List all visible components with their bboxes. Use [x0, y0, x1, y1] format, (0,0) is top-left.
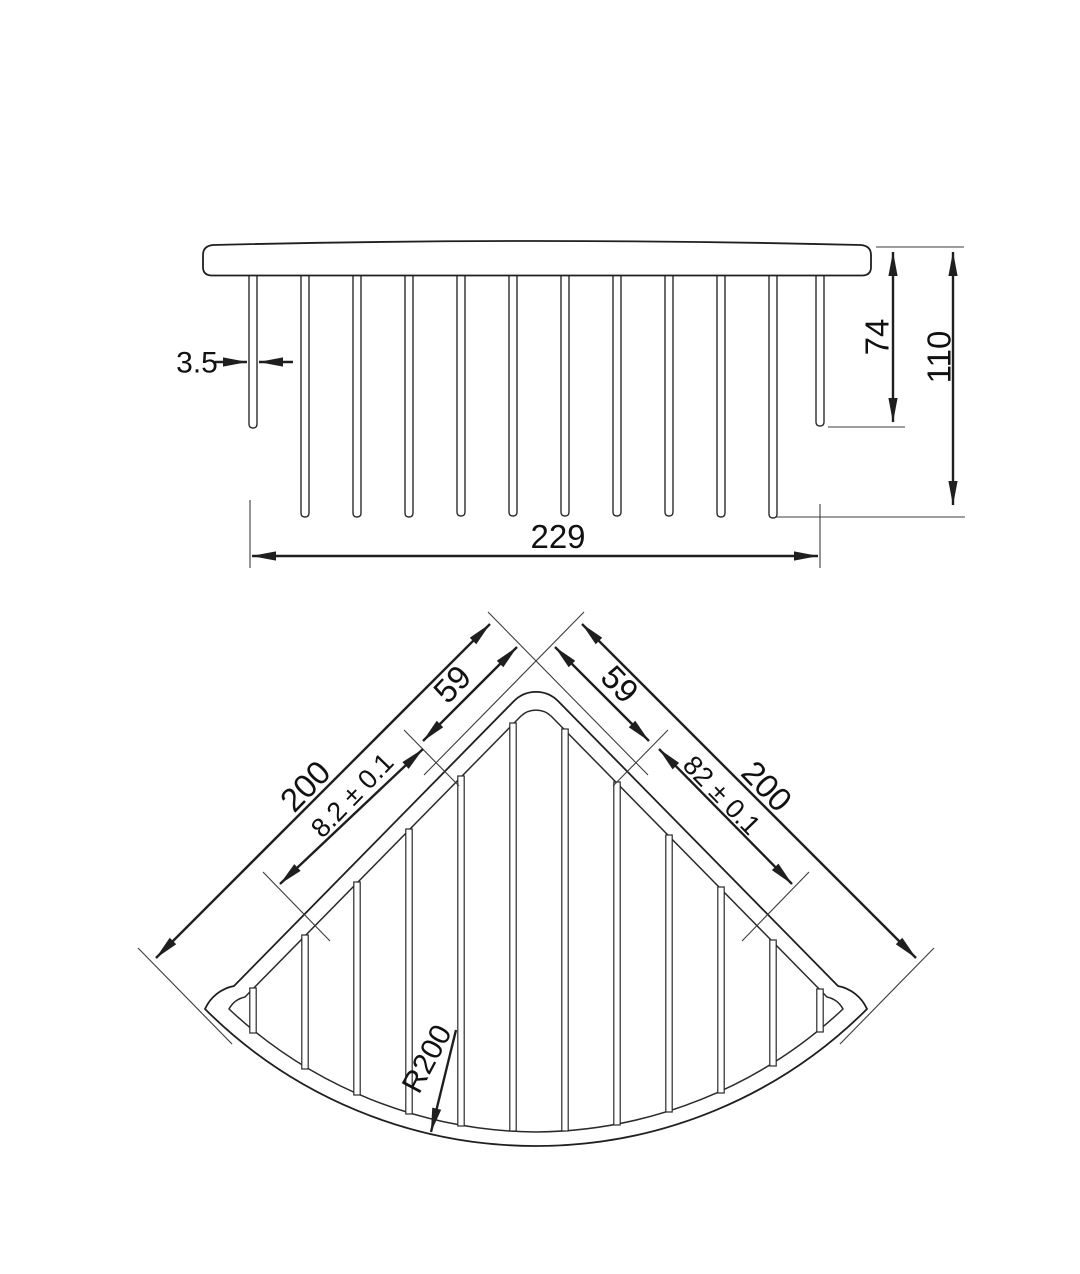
wire-plan: [614, 782, 620, 1125]
rail-profile: [203, 241, 871, 276]
technical-drawing-canvas: 3.5 229 74 110: [0, 0, 1080, 1274]
wire-side: [457, 276, 465, 516]
wire-plan: [770, 940, 776, 1066]
wire-plan: [510, 723, 516, 1131]
wire-side: [665, 276, 673, 516]
wire-plan: [354, 882, 360, 1095]
wire-side: [301, 276, 309, 517]
dimension-overall-width: 229: [250, 500, 820, 568]
dim-label-overall-width: 229: [530, 518, 585, 555]
basket-wires-side: [249, 276, 824, 518]
dim-label-wire-diameter: 3.5: [176, 347, 218, 380]
plan-view: 200 59 8.2 ± 0.1 200 59 82 ± 0.1 R200: [138, 612, 934, 1146]
wire-side: [561, 276, 569, 516]
dim-label-right-apex-offset: 59: [594, 658, 646, 710]
wire-plan: [718, 887, 724, 1093]
wire-side: [613, 276, 621, 516]
wire-side: [717, 276, 725, 517]
wire-side: [405, 276, 413, 517]
drawing-sheet: 3.5 229 74 110: [0, 0, 1080, 1274]
wire-plan: [666, 835, 672, 1112]
side-elevation-view: 3.5 229 74 110: [176, 241, 965, 568]
wire-plan: [817, 989, 823, 1032]
dim-label-overall-depth: 110: [921, 331, 958, 384]
wire-plan: [458, 776, 464, 1126]
wire-side: [509, 276, 517, 516]
wire-plan: [302, 935, 308, 1069]
wire-plan: [250, 988, 256, 1033]
wire-side: [249, 276, 257, 428]
dimension-wire-diameter: 3.5: [176, 347, 293, 380]
dim-label-end-wire-drop: 74: [859, 319, 896, 356]
dim-label-left-apex-offset: 59: [426, 658, 478, 710]
dimension-overall-depth: 110: [775, 252, 965, 517]
wire-side: [353, 276, 361, 517]
wire-side: [769, 276, 777, 518]
wire-plan: [562, 729, 568, 1131]
wire-side: [816, 276, 824, 426]
